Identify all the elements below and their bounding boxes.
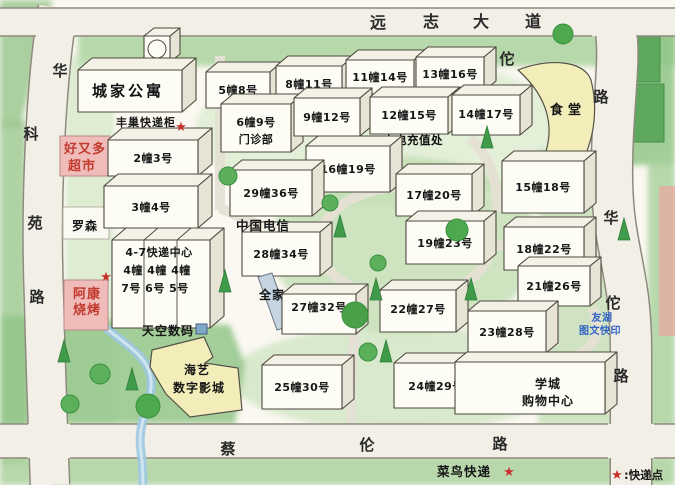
parcel-point-star-icon: ★ — [100, 270, 112, 285]
campus-map: 城家公寓 好又多 超市 罗森 阿康 烧烤 5幢8号 8幢11号 11幢14号 1… — [0, 0, 675, 485]
cainiao-label: 菜鸟快递 — [436, 464, 491, 479]
building-label: 14幢17号 — [458, 107, 514, 121]
building-21-26: 21幢26号 — [518, 257, 601, 306]
building-22-27: 22幢27号 — [380, 280, 468, 332]
print-shop-label-2: 图文快印 — [579, 324, 621, 337]
legend-star-icon: ★ — [611, 468, 623, 483]
top-road-char: 道 — [525, 12, 541, 31]
pink-strip — [659, 186, 675, 336]
building-label: 3幢4号 — [131, 200, 170, 214]
parcel-point-star-icon: ★ — [175, 120, 187, 135]
canteen-label: 食堂 — [550, 102, 586, 118]
digital-store-label: 天空数码 — [142, 323, 194, 338]
lawson-label: 罗森 — [72, 218, 98, 233]
campus-map-screenshot: 城家公寓 好又多 超市 罗森 阿康 烧烤 5幢8号 8幢11号 11幢14号 1… — [0, 0, 675, 485]
familymart-label: 全家 — [258, 287, 285, 302]
right-road — [612, 24, 631, 485]
building-label: 25幢30号 — [274, 380, 330, 394]
telecom-label: 中国电信 — [236, 218, 290, 233]
express-center-title: 4-7快递中心 — [125, 245, 192, 259]
supermarket-label-1: 好又多 — [63, 141, 106, 157]
building-label: 23幢28号 — [479, 325, 535, 339]
building-12-15: 12幢15号 — [370, 87, 460, 134]
mall-label-2: 购物中心 — [522, 393, 574, 408]
left-road-char: 路 — [29, 288, 45, 306]
fengchao-locker-label: 丰巢快递柜 — [116, 115, 176, 129]
bottom-road-char: 蔡 — [219, 440, 235, 458]
right-road-char: 路 — [613, 367, 629, 385]
building-23-28: 23幢28号 — [468, 301, 558, 353]
building-label: 29幢36号 — [243, 186, 299, 200]
right-road-char: 佗 — [499, 50, 514, 68]
apartment-label: 城家公寓 — [92, 82, 164, 100]
building-3-4: 3幢4号 — [104, 174, 212, 228]
bottom-road — [0, 424, 675, 458]
water-tower — [144, 28, 180, 62]
building-25-30: 25幢30号 — [262, 355, 354, 409]
building-9-12: 9幢12号 — [294, 88, 372, 136]
building-label: 9幢12号 — [303, 110, 350, 124]
building-label: 22幢27号 — [390, 302, 446, 316]
building-label: 13幢16号 — [422, 67, 478, 81]
building-29-36: 29幢36号 — [230, 160, 324, 216]
left-road-char: 苑 — [27, 214, 42, 232]
top-road-char: 大 — [473, 12, 489, 31]
print-shop-label-1: 友湖 — [592, 311, 613, 324]
tower-window — [148, 40, 166, 58]
building-6-9-clinic: 6幢9号 门诊部 — [221, 94, 303, 152]
cinema-label-1: 海艺 — [184, 362, 210, 377]
building-label: 18幢22号 — [516, 242, 572, 256]
building-label: 21幢26号 — [526, 279, 582, 293]
express-center-row2: 7号 6号 5号 — [121, 282, 189, 295]
building-label: 2幢3号 — [133, 151, 172, 165]
cinema-label-2: 数字影城 — [173, 380, 225, 395]
legend: ★ :快递点 — [611, 468, 663, 483]
bbq-label-2: 烧烤 — [73, 302, 101, 318]
clinic-label: 门诊部 — [239, 132, 274, 146]
building-label: 11幢14号 — [352, 70, 408, 84]
building-label: 12幢15号 — [381, 108, 437, 122]
top-road — [0, 8, 675, 36]
building-label: 16幢19号 — [320, 162, 376, 176]
left-road-char: 科 — [23, 125, 38, 143]
building-xuecheng-mall: 学城 购物中心 — [455, 352, 617, 414]
top-road-char: 远 — [370, 13, 386, 32]
top-road-char: 志 — [423, 12, 439, 31]
building-2-3: 2幢3号 — [108, 128, 212, 176]
building-label: 28幢34号 — [253, 247, 309, 261]
right-road-char: 佗 — [605, 294, 620, 312]
building-14-17: 14幢17号 — [452, 85, 532, 135]
building-express-center-4-7: 4-7快递中心 4幢 4幢 4幢 7号 6号 5号 — [112, 228, 224, 328]
right-road-char: 华 — [603, 209, 618, 227]
right-road-char: 路 — [593, 88, 609, 106]
bottom-road-char: 路 — [492, 435, 508, 453]
building-15-18: 15幢18号 — [502, 151, 596, 213]
building-label: 6幢9号 — [236, 115, 275, 129]
building-13-16: 13幢16号 — [416, 47, 496, 91]
bbq-label-1: 阿康 — [73, 286, 101, 302]
bottom-road-char: 伦 — [359, 436, 375, 454]
parcel-point-star-icon: ★ — [503, 465, 515, 480]
legend-label: :快递点 — [624, 468, 664, 482]
monitor-icon — [196, 324, 207, 334]
building-label: 15幢18号 — [515, 180, 571, 194]
building-label: 17幢20号 — [406, 188, 462, 202]
mall-label-1: 学城 — [535, 376, 561, 391]
building-label: 27幢32号 — [291, 300, 347, 314]
express-center-row1: 4幢 4幢 4幢 — [123, 263, 191, 277]
left-road-char: 华 — [52, 62, 67, 80]
building-17-20: 17幢20号 — [396, 164, 484, 216]
building-chengjia-apartment: 城家公寓 — [78, 58, 196, 112]
supermarket-label-2: 超市 — [68, 158, 96, 174]
